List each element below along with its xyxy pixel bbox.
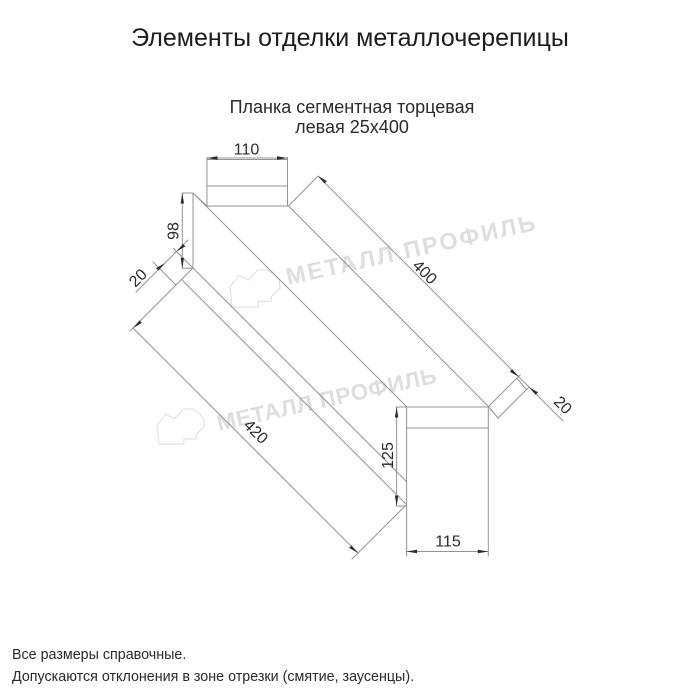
svg-text:20: 20	[126, 266, 151, 291]
svg-text:115: 115	[435, 534, 461, 551]
svg-text:20: 20	[550, 393, 575, 418]
svg-text:МЕТАЛЛ ПРОФИЛЬ: МЕТАЛЛ ПРОФИЛЬ	[283, 209, 539, 290]
svg-text:98: 98	[166, 222, 183, 240]
svg-text:125: 125	[380, 442, 397, 469]
svg-text:110: 110	[234, 142, 260, 159]
